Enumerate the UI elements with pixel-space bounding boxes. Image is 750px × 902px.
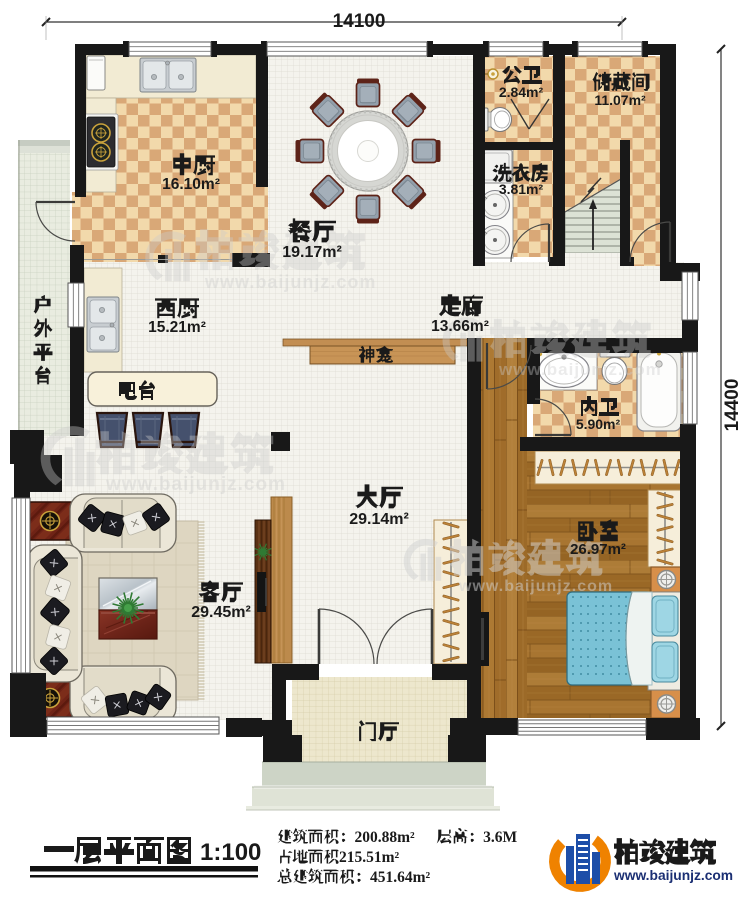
svg-text:3.81m²: 3.81m² — [499, 181, 544, 197]
svg-text:2.84m²: 2.84m² — [499, 84, 544, 100]
svg-text:29.45m²: 29.45m² — [191, 604, 251, 621]
svg-text:451.64m²: 451.64m² — [370, 869, 431, 886]
svg-text:215.51m²: 215.51m² — [339, 849, 400, 866]
svg-text:3.6M: 3.6M — [483, 829, 517, 846]
svg-text:26.97m²: 26.97m² — [570, 541, 626, 558]
svg-text:15.21m²: 15.21m² — [148, 319, 206, 336]
svg-text:5.90m²: 5.90m² — [576, 416, 621, 432]
svg-text:16.10m²: 16.10m² — [162, 176, 220, 193]
svg-text:www.baijunjz.com: www.baijunjz.com — [498, 360, 662, 379]
svg-text:1:100: 1:100 — [200, 839, 261, 866]
svg-text:www.baijunjz.com: www.baijunjz.com — [458, 578, 613, 595]
svg-text:200.88m²: 200.88m² — [355, 829, 416, 846]
svg-text:11.07m²: 11.07m² — [594, 92, 646, 108]
svg-text:14400: 14400 — [722, 379, 743, 432]
svg-text:www.baijunjz.com: www.baijunjz.com — [613, 868, 733, 883]
svg-text:www.baijunjz.com: www.baijunjz.com — [204, 272, 376, 292]
svg-text:13.66m²: 13.66m² — [431, 318, 489, 335]
svg-text:29.14m²: 29.14m² — [349, 511, 409, 528]
svg-text:19.17m²: 19.17m² — [282, 244, 342, 261]
svg-text:www.baijunjz.com: www.baijunjz.com — [105, 474, 286, 495]
svg-text:14100: 14100 — [333, 11, 386, 32]
